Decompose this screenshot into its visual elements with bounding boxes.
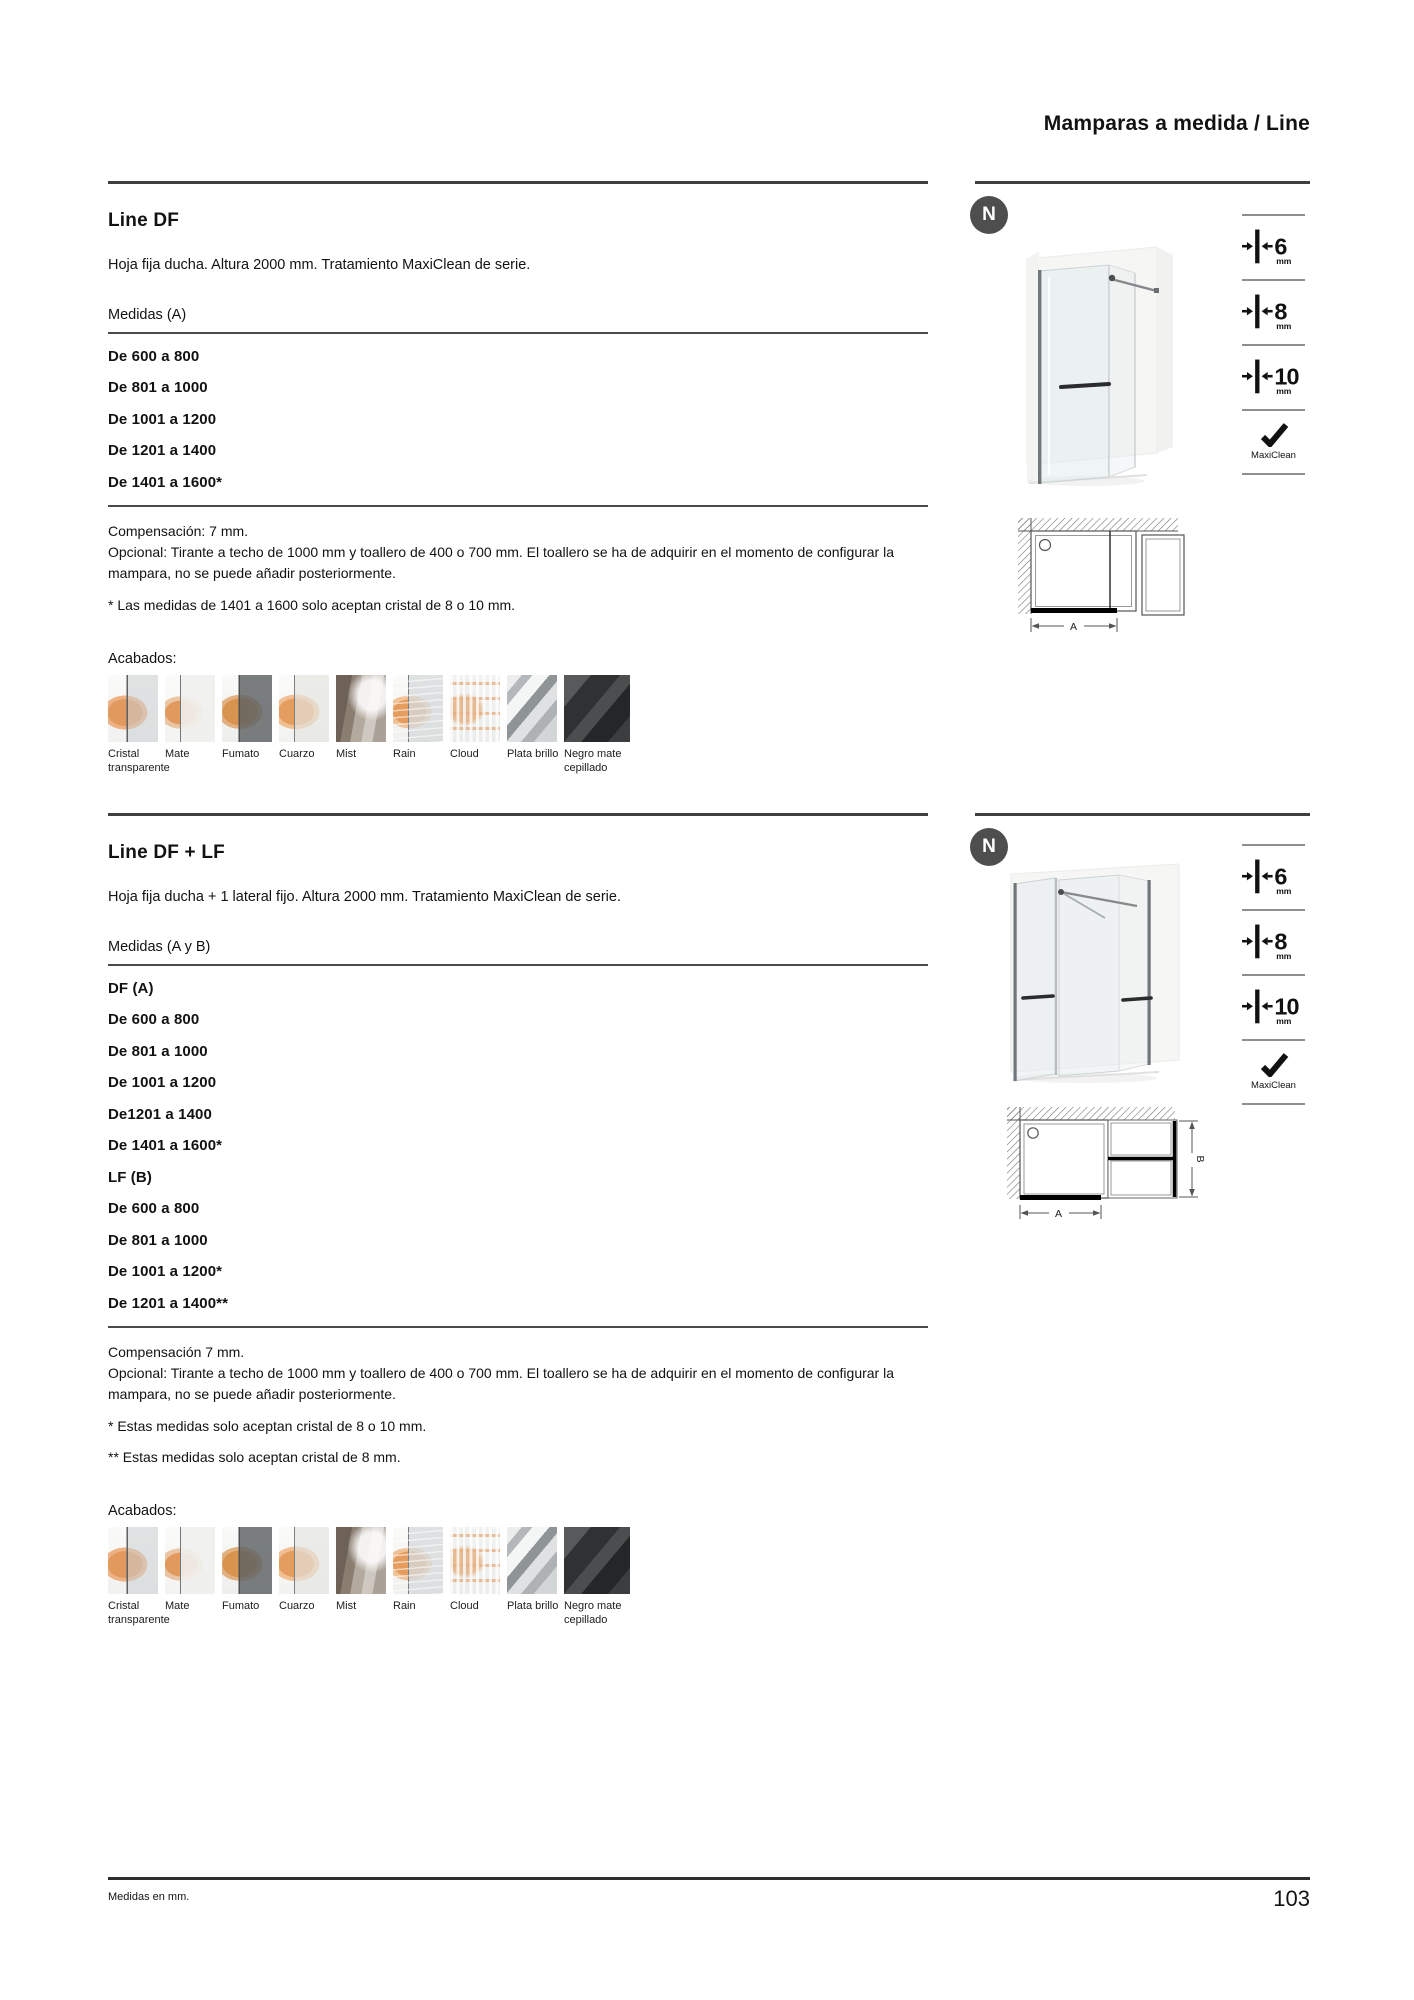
finish-item: Cristal transparente [108,675,158,776]
finishes-row: Cristal transparente Mate Fumato Cuarzo [108,675,928,776]
footer-divider [108,1877,1310,1880]
notes: Compensación 7 mm.Opcional: Tirante a te… [108,1342,928,1405]
section-title: Line DF [108,211,928,231]
measure-item: De 1001 a 1200* [108,1256,928,1288]
finish-item: Fumato [222,675,272,776]
footnote-line: ** Estas medidas solo aceptan cristal de… [108,1447,928,1467]
finish-swatch [222,1527,272,1594]
measure-item: De 1401 a 1600* [108,466,928,498]
svg-text:mm: mm [1276,321,1292,331]
finish-swatch [564,1527,630,1594]
footnote-line: * Las medidas de 1401 a 1600 solo acepta… [108,595,928,615]
measure-item: De 1001 a 1200 [108,403,928,435]
thickness-list: 6 mm 8 mm [1242,216,1305,411]
finish-item: Mist [336,1527,386,1628]
measures-label: Medidas (A y B) [108,939,928,966]
finish-item: Rain [393,675,443,776]
footer-note: Medidas en mm. [108,1891,189,1903]
measure-item: De 600 a 800 [108,1004,928,1036]
measure-item: De 801 a 1000 [108,372,928,404]
finish-item: Cuarzo [279,675,329,776]
measures-list: De 600 a 800De 801 a 1000De 1001 a 1200D… [108,334,928,507]
svg-text:mm: mm [1276,386,1292,396]
section-line-df: Line DF Hoja fija ducha. Altura 2000 mm.… [108,184,928,775]
measure-item: De 1201 a 1400** [108,1287,928,1319]
finish-item: Cristal transparente [108,1527,158,1628]
section-title: Line DF + LF [108,843,928,863]
notes: Compensación: 7 mm.Opcional: Tirante a t… [108,521,928,584]
finishes-label: Acabados: [108,651,928,667]
maxiclean-label: MaxiClean [1251,1080,1296,1091]
measure-item: De 801 a 1000 [108,1035,928,1067]
glass-thickness-legend: 6 mm 8 mm [1242,844,1305,1105]
section-line-df-lf: Line DF + LF Hoja fija ducha + 1 lateral… [108,816,928,1627]
footnote-line: * Estas medidas solo aceptan cristal de … [108,1416,928,1436]
finish-swatch [564,675,630,742]
finish-swatch [279,1527,329,1594]
finish-swatch [165,1527,215,1594]
measures-list: DF (A)De 600 a 800De 801 a 1000De 1001 a… [108,966,928,1328]
thickness-cell: 8 mm [1242,281,1305,346]
thickness-cell: 6 mm [1242,846,1305,911]
measures-label: Medidas (A) [108,307,928,334]
product-photo-line-df-lf [997,848,1197,1086]
svg-text:mm: mm [1276,886,1292,896]
product-photo-line-df [1005,225,1180,495]
finish-swatch [507,675,557,742]
finish-item: Mate [165,675,215,776]
finish-item: Plata brillo [507,675,557,776]
svg-text:A: A [1055,1208,1062,1220]
finish-swatch [393,1527,443,1594]
section-description: Hoja fija ducha. Altura 2000 mm. Tratami… [108,257,928,274]
footnotes: * Estas medidas solo aceptan cristal de … [108,1416,928,1467]
maxiclean-cell: MaxiClean [1242,411,1305,475]
finish-swatch [165,675,215,742]
finish-swatch [336,675,386,742]
glass-thickness-icon: 8 mm [1242,291,1305,335]
measure-item: De 801 a 1000 [108,1224,928,1256]
finish-item: Cloud [450,675,500,776]
page-number: 103 [1273,1886,1310,1912]
svg-text:mm: mm [1276,1016,1292,1026]
note-line: Opcional: Tirante a techo de 1000 mm y t… [108,1363,914,1405]
finish-swatch [108,1527,158,1594]
measure-item: De 1401 a 1600* [108,1130,928,1162]
maxiclean-check-icon [1259,1053,1289,1077]
finish-swatch [393,675,443,742]
glass-thickness-icon: 10 mm [1242,986,1305,1030]
page-title: Mamparas a medida / Line [1044,112,1310,136]
glass-thickness-legend: 6 mm 8 mm [1242,214,1305,475]
measure-item: De 600 a 800 [108,340,928,372]
finish-item: Cuarzo [279,1527,329,1628]
maxiclean-check-icon [1259,423,1289,447]
finish-item: Fumato [222,1527,272,1628]
note-line: Compensación: 7 mm. [108,521,914,542]
footnotes: * Las medidas de 1401 a 1600 solo acepta… [108,595,928,615]
svg-text:A: A [1070,621,1077,633]
finishes-row: Cristal transparente Mate Fumato Cuarzo [108,1527,928,1628]
maxiclean-label: MaxiClean [1251,450,1296,461]
maxiclean-cell: MaxiClean [1242,1041,1305,1105]
divider [975,181,1310,184]
finish-item: Cloud [450,1527,500,1628]
svg-text:B: B [1194,1155,1206,1162]
thickness-cell: 10 mm [1242,346,1305,411]
thickness-cell: 10 mm [1242,976,1305,1041]
measure-item: DF (A) [108,972,928,1004]
glass-thickness-icon: 8 mm [1242,921,1305,965]
thickness-cell: 6 mm [1242,216,1305,281]
catalog-page: Mamparas a medida / Line Line DF Hoja fi… [0,0,1414,2000]
finishes-label: Acabados: [108,1503,928,1519]
finish-swatch [279,675,329,742]
measure-item: LF (B) [108,1161,928,1193]
new-badge: N [970,196,1008,234]
thickness-list: 6 mm 8 mm [1242,846,1305,1041]
measure-item: De 1201 a 1400 [108,435,928,467]
section-description: Hoja fija ducha + 1 lateral fijo. Altura… [108,889,928,906]
tech-drawing-line-df-lf: A B [1001,1101,1213,1243]
tech-drawing-line-df: A [1012,514,1192,642]
glass-thickness-icon: 6 mm [1242,856,1305,900]
finish-swatch [450,1527,500,1594]
finish-swatch [450,675,500,742]
note-line: Opcional: Tirante a techo de 1000 mm y t… [108,542,914,584]
note-line: Compensación 7 mm. [108,1342,914,1363]
finish-swatch [336,1527,386,1594]
finish-item: Rain [393,1527,443,1628]
finish-label: Negro mate cepillado [564,748,636,776]
glass-thickness-icon: 10 mm [1242,356,1305,400]
measure-item: De 1001 a 1200 [108,1067,928,1099]
finish-item: Negro mate cepillado [564,675,630,776]
thickness-cell: 8 mm [1242,911,1305,976]
divider [975,813,1310,816]
finish-swatch [507,1527,557,1594]
svg-text:mm: mm [1276,951,1292,961]
finish-swatch [222,675,272,742]
finish-item: Plata brillo [507,1527,557,1628]
glass-thickness-icon: 6 mm [1242,226,1305,270]
finish-swatch [108,675,158,742]
svg-text:mm: mm [1276,256,1292,266]
measure-item: De1201 a 1400 [108,1098,928,1130]
finish-item: Mate [165,1527,215,1628]
finish-item: Negro mate cepillado [564,1527,630,1628]
finish-label: Negro mate cepillado [564,1600,636,1628]
measure-item: De 600 a 800 [108,1193,928,1225]
finish-item: Mist [336,675,386,776]
